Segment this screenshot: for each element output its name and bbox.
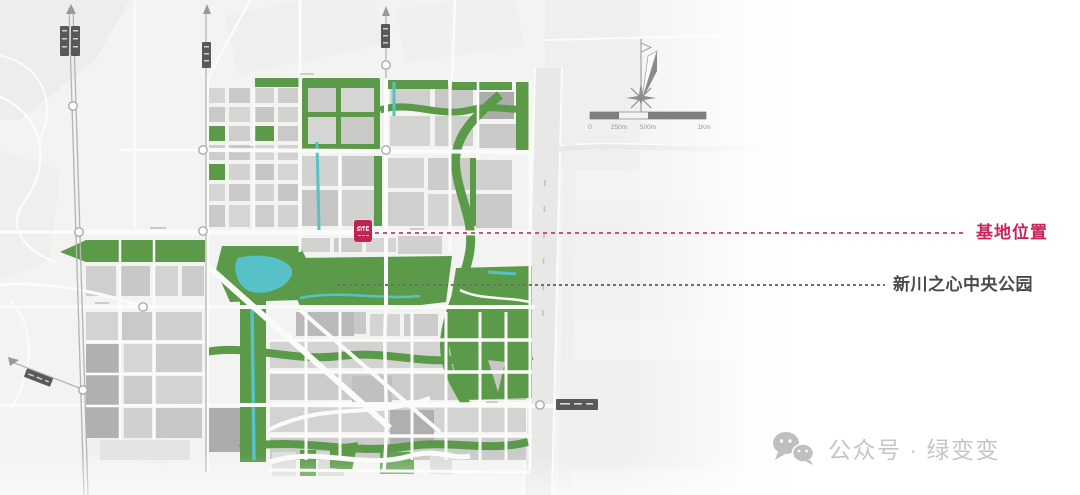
- road-sign-box: [556, 399, 598, 410]
- station-dot: [139, 303, 147, 311]
- station-dot: [382, 146, 390, 154]
- station-dot: [79, 386, 87, 394]
- station-dot: [69, 102, 77, 110]
- station-dot: [75, 228, 83, 236]
- scale-label-0: 0: [588, 124, 592, 131]
- east-park-green: [446, 266, 532, 400]
- station-dot: [199, 227, 207, 235]
- scale-bar: 0 250m 500m 1Km: [588, 112, 711, 131]
- road-sign-box: [202, 42, 211, 68]
- site-location-leader-line: [375, 232, 967, 234]
- watermark-text: 公众号 · 绿变变: [828, 431, 1000, 465]
- wechat-icon: [772, 430, 818, 466]
- watermark: 公众号 · 绿变变: [772, 430, 1000, 466]
- green-frame-superblock: [302, 78, 380, 150]
- central-park-leader-line: [337, 284, 885, 286]
- station-dot: [536, 401, 544, 409]
- canal: [252, 304, 254, 460]
- site-marker-dash: [358, 235, 369, 236]
- annotation-central-park: 新川之心中央公园: [893, 275, 1033, 295]
- station-dot: [382, 61, 390, 69]
- scale-label-1km: 1Km: [697, 124, 710, 131]
- annotation-site-location: 基地位置: [976, 223, 1048, 243]
- north-arrow-icon: [626, 39, 657, 113]
- central-park-green: [292, 256, 452, 308]
- scale-label-250m: 250m: [611, 124, 627, 131]
- master-plan-figure: 0 250m 500m 1Km SITE 基地位置 新川之心中央公园 公众号 ·…: [0, 0, 1080, 495]
- site-marker: SITE: [354, 220, 372, 242]
- scale-label-500m: 500m: [640, 124, 656, 131]
- station-dot: [199, 146, 207, 154]
- compass-and-scale: 0 250m 500m 1Km: [580, 25, 720, 135]
- site-marker-label: SITE: [356, 228, 369, 234]
